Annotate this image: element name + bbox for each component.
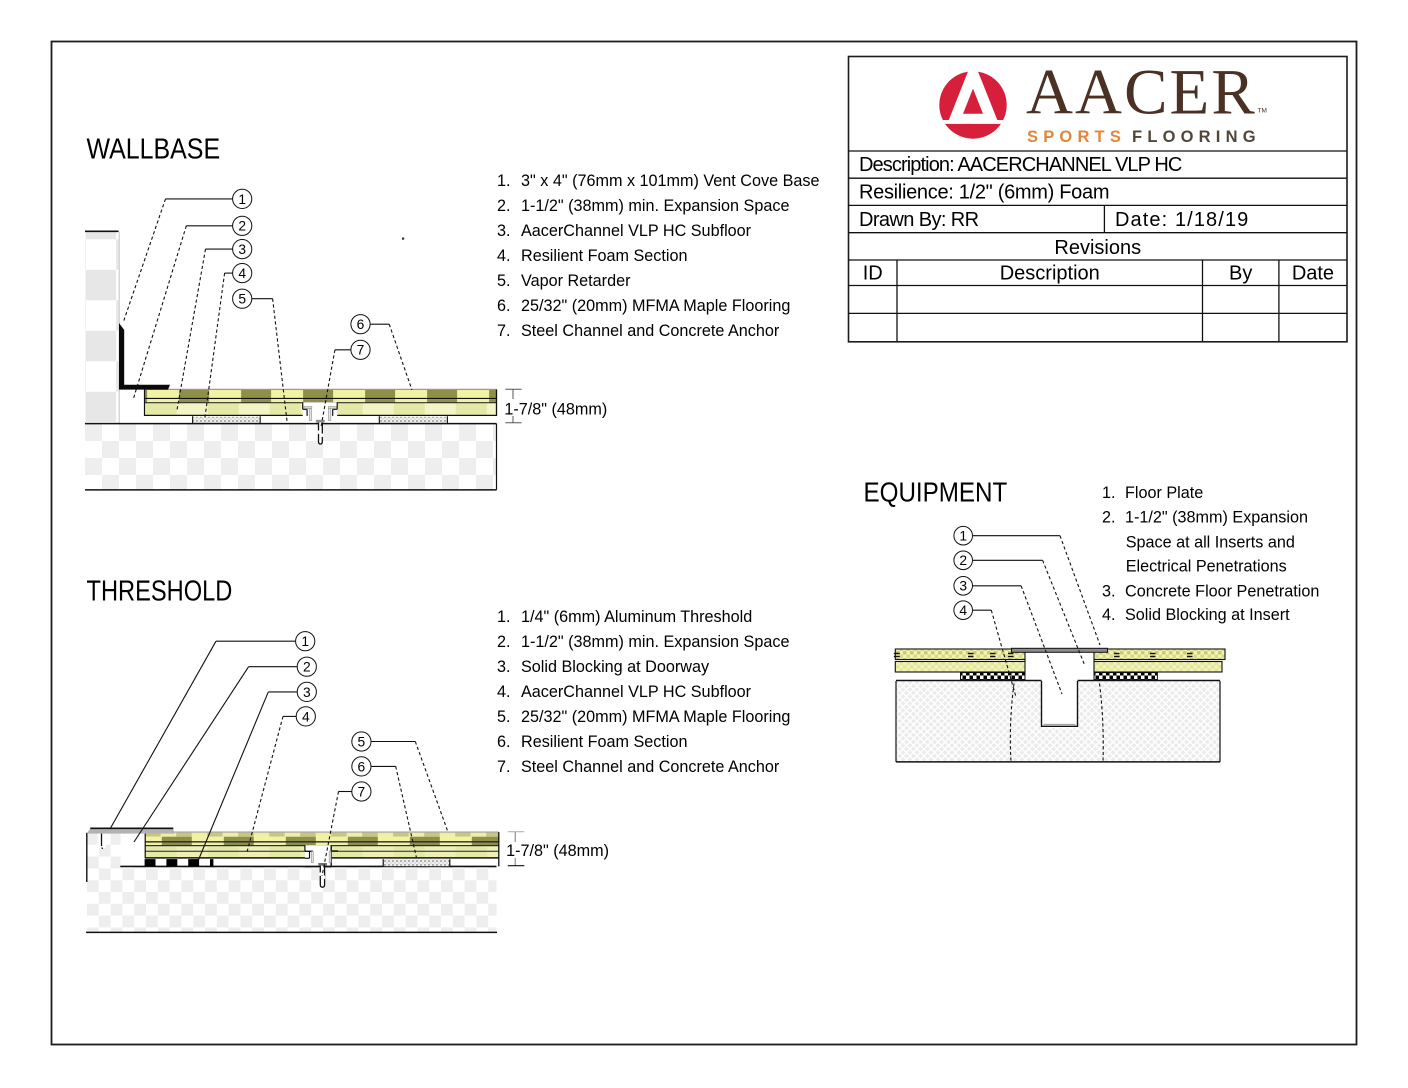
svg-text:6: 6 [358,759,366,774]
svg-text:4: 4 [238,266,246,281]
svg-text:2: 2 [959,553,967,568]
svg-text:1: 1 [238,192,246,207]
svg-text:Drawn By: RR: Drawn By: RR [859,209,979,231]
svg-text:Revisions: Revisions [1054,237,1141,259]
svg-text:7.: 7. [497,322,511,340]
svg-text:1.: 1. [497,172,511,190]
svg-text:Resilient Foam Section: Resilient Foam Section [521,733,687,751]
svg-text:1.: 1. [1102,484,1116,502]
svg-text:1: 1 [301,634,309,649]
svg-text:Vapor Retarder: Vapor Retarder [521,272,631,290]
svg-text:7.: 7. [497,758,511,776]
svg-text:AacerChannel VLP HC Subfloor: AacerChannel VLP HC Subfloor [521,683,752,701]
svg-text:Date: Date [1292,263,1334,285]
svg-text:5.: 5. [497,272,511,290]
svg-text:Steel Channel and Concrete Anc: Steel Channel and Concrete Anchor [521,322,780,340]
svg-text:Concrete Floor Penetration: Concrete Floor Penetration [1125,582,1319,600]
svg-text:5.: 5. [497,708,511,726]
svg-text:4.: 4. [1102,606,1116,624]
svg-text:3.: 3. [1102,582,1116,600]
svg-text:4: 4 [959,603,967,618]
svg-text:6: 6 [357,317,365,332]
svg-text:WALLBASE: WALLBASE [87,134,221,166]
svg-text:6.: 6. [497,733,511,751]
svg-text:6.: 6. [497,297,511,315]
svg-text:Description: AACERCHANNEL VLP: Description: AACERCHANNEL VLP HC [859,154,1182,176]
svg-text:25/32" (20mm) MFMA Maple Floor: 25/32" (20mm) MFMA Maple Flooring [521,297,790,315]
svg-text:4.: 4. [497,247,511,265]
svg-text:THRESHOLD: THRESHOLD [87,576,233,608]
svg-text:3.: 3. [497,658,511,676]
svg-text:1: 1 [959,529,967,544]
svg-text:4.: 4. [497,683,511,701]
svg-text:Resilience: 1/2" (6mm) Foam: Resilience: 1/2" (6mm) Foam [859,182,1109,204]
svg-text:Solid Blocking at Doorway: Solid Blocking at Doorway [521,658,710,676]
svg-text:2.: 2. [1102,509,1116,527]
svg-text:2.: 2. [497,633,511,651]
svg-text:Date: 1/18/19: Date: 1/18/19 [1115,209,1249,231]
svg-text:2: 2 [303,660,311,675]
svg-text:3.: 3. [497,222,511,240]
svg-text:1-1/2" (38mm) min. Expansion S: 1-1/2" (38mm) min. Expansion Space [521,633,789,651]
svg-text:7: 7 [357,343,365,358]
svg-text:3" x 4" (76mm x 101mm) Vent Co: 3" x 4" (76mm x 101mm) Vent Cove Base [521,172,820,190]
svg-text:Space at all Inserts and: Space at all Inserts and [1126,534,1295,552]
svg-text:TM: TM [1258,108,1267,115]
svg-text:Steel Channel and Concrete Anc: Steel Channel and Concrete Anchor [521,758,780,776]
svg-text:Floor Plate: Floor Plate [1125,484,1203,502]
svg-text:1-7/8" (48mm): 1-7/8" (48mm) [506,842,609,860]
svg-text:4: 4 [302,709,310,724]
svg-text:ID: ID [863,263,883,285]
svg-text:2.: 2. [497,197,511,215]
svg-text:3: 3 [303,685,311,700]
svg-text:1-1/2" (38mm) Expansion: 1-1/2" (38mm) Expansion [1125,509,1308,527]
svg-text:SPORTSFLOORING: SPORTSFLOORING [1027,128,1261,146]
svg-text:By: By [1229,263,1252,285]
svg-text:5: 5 [238,292,246,307]
svg-text:Description: Description [1000,263,1100,285]
svg-text:25/32" (20mm) MFMA Maple Floor: 25/32" (20mm) MFMA Maple Flooring [521,708,790,726]
svg-text:EQUIPMENT: EQUIPMENT [864,477,1008,508]
svg-text:3: 3 [238,242,246,257]
svg-text:Resilient Foam Section: Resilient Foam Section [521,247,687,265]
svg-text:AACER: AACER [1026,56,1257,128]
svg-text:AacerChannel VLP HC Subfloor: AacerChannel VLP HC Subfloor [521,222,752,240]
svg-text:1.: 1. [497,608,511,626]
svg-text:1-1/2" (38mm) min. Expansion S: 1-1/2" (38mm) min. Expansion Space [521,197,789,215]
svg-text:7: 7 [358,784,366,799]
svg-text:3: 3 [959,579,967,594]
svg-text:1-7/8" (48mm): 1-7/8" (48mm) [504,401,607,419]
svg-text:Electrical Penetrations: Electrical Penetrations [1126,557,1287,575]
svg-text:Solid Blocking at Insert: Solid Blocking at Insert [1125,606,1290,624]
svg-text:1/4" (6mm) Aluminum Threshold: 1/4" (6mm) Aluminum Threshold [521,608,752,626]
svg-text:2: 2 [238,219,246,234]
svg-text:5: 5 [358,734,366,749]
